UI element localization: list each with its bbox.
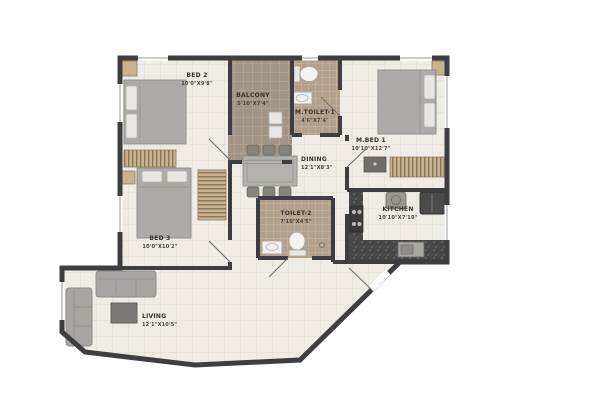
toilet-tank (294, 66, 300, 82)
stove-icon (350, 206, 363, 232)
burner-icon (352, 210, 356, 214)
dresser-knob (373, 162, 376, 165)
kitchen-dims: 10'10"X7'10" (379, 215, 418, 221)
balcony-seat-icon (269, 126, 282, 138)
chair-icon (247, 187, 259, 197)
mbed1-label: M.BED 1 (356, 137, 386, 144)
wardrobe-icon (124, 150, 176, 167)
toilet-icon (289, 232, 305, 250)
pillow-icon (167, 171, 187, 182)
bed3-dims: 10'0"X10'2" (142, 244, 177, 250)
bed2-label: BED 2 (186, 72, 207, 79)
bed2-dims: 10'0"X9'8" (181, 81, 213, 87)
burner-icon (352, 222, 356, 226)
dining-dims: 12'1"X8'3" (301, 165, 333, 171)
chair-icon (279, 187, 291, 197)
sink-icon (262, 241, 282, 254)
wardrobe-icon (390, 157, 444, 177)
balcony-label: BALCONY (236, 92, 270, 99)
bedside-table-icon (122, 61, 137, 76)
chair-icon (279, 145, 291, 155)
burner-icon (357, 210, 361, 214)
sofa-icon (96, 271, 156, 297)
mtoilet1-dims: 4'6"X7'4" (301, 118, 329, 124)
sink-icon (292, 92, 312, 104)
coffee-table-icon (111, 303, 137, 323)
mbed1-dims: 10'10"X12'7" (352, 146, 391, 152)
pillow-icon (126, 114, 137, 138)
living-dims: 12'1"X10'5" (142, 322, 177, 328)
wardrobe-icon (198, 170, 226, 220)
dining-label: DINING (301, 156, 327, 163)
pillow-icon (424, 75, 435, 99)
kitchen-sink-basin (401, 245, 413, 254)
pillow-icon (126, 86, 137, 110)
bedside-table-icon (122, 171, 135, 184)
dining-furniture (243, 145, 297, 197)
bed3-label: BED 3 (149, 235, 170, 242)
toilet-tank (289, 250, 306, 256)
balcony-seat-icon (269, 112, 282, 124)
burner-icon (357, 222, 361, 226)
mtoilet1-label: M.TOILET-1 (295, 109, 335, 116)
toilet-icon (300, 67, 318, 82)
toilet2-label: TOILET-2 (280, 210, 311, 217)
floor-plan-canvas: BED 2 10'0"X9'8" BALCONY 5'10"X7'4" M.TO… (0, 0, 600, 400)
kitchen-label: KITCHEN (382, 206, 413, 213)
floor-plan: BED 2 10'0"X9'8" BALCONY 5'10"X7'4" M.TO… (0, 0, 600, 400)
pillow-icon (424, 103, 435, 127)
chair-icon (263, 145, 275, 155)
living-label: LIVING (142, 313, 166, 320)
toilet2-dims: 7'10"X4'5" (280, 219, 312, 225)
pillow-icon (142, 171, 162, 182)
chair-icon (263, 187, 275, 197)
balcony-dims: 5'10"X7'4" (237, 101, 269, 107)
chair-icon (247, 145, 259, 155)
